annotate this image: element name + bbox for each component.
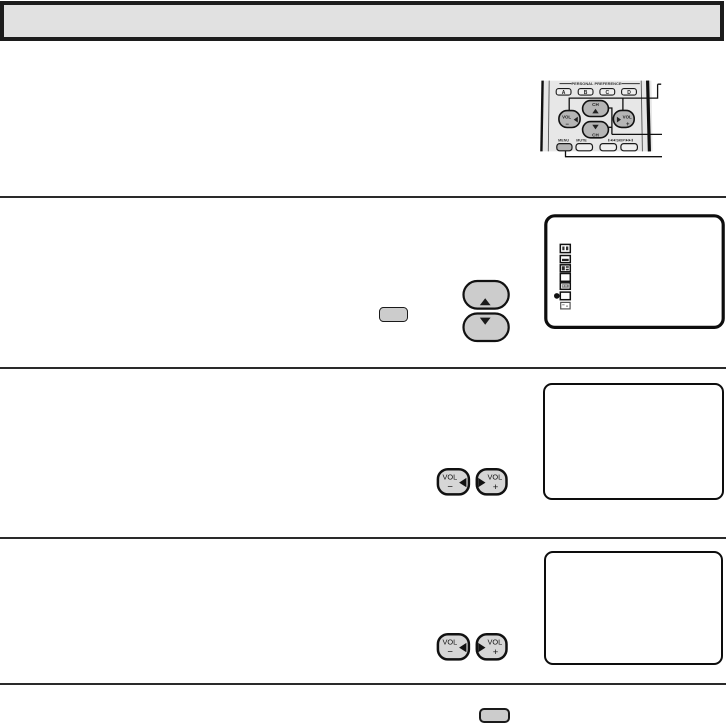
svg-text:A: A: [562, 90, 566, 96]
svg-text:VOL: VOL: [443, 638, 458, 647]
svg-text:D: D: [627, 90, 631, 96]
svg-text:MENU: MENU: [558, 139, 569, 143]
svg-text:MUTE: MUTE: [576, 139, 587, 143]
svg-text:PERSONAL PREFERENCE: PERSONAL PREFERENCE: [572, 82, 622, 86]
svg-text:B: B: [584, 90, 588, 96]
svg-text:VOL: VOL: [443, 473, 458, 482]
svg-text:VOL: VOL: [488, 638, 503, 647]
svg-text:VOL: VOL: [562, 115, 571, 120]
svg-text:−: −: [565, 122, 569, 128]
svg-text:VOL: VOL: [488, 473, 503, 482]
svg-text:C: C: [605, 90, 609, 96]
svg-text:−: −: [447, 646, 453, 657]
svg-text:+: +: [493, 647, 499, 658]
svg-text:+: +: [493, 482, 499, 493]
svg-text:CH: CH: [592, 102, 599, 107]
svg-text:SKIP: SKIP: [616, 139, 625, 143]
svg-text:CH: CH: [592, 133, 599, 138]
svg-text:VOL: VOL: [623, 115, 632, 120]
svg-text:−: −: [447, 481, 453, 492]
svg-text:+: +: [626, 122, 630, 128]
